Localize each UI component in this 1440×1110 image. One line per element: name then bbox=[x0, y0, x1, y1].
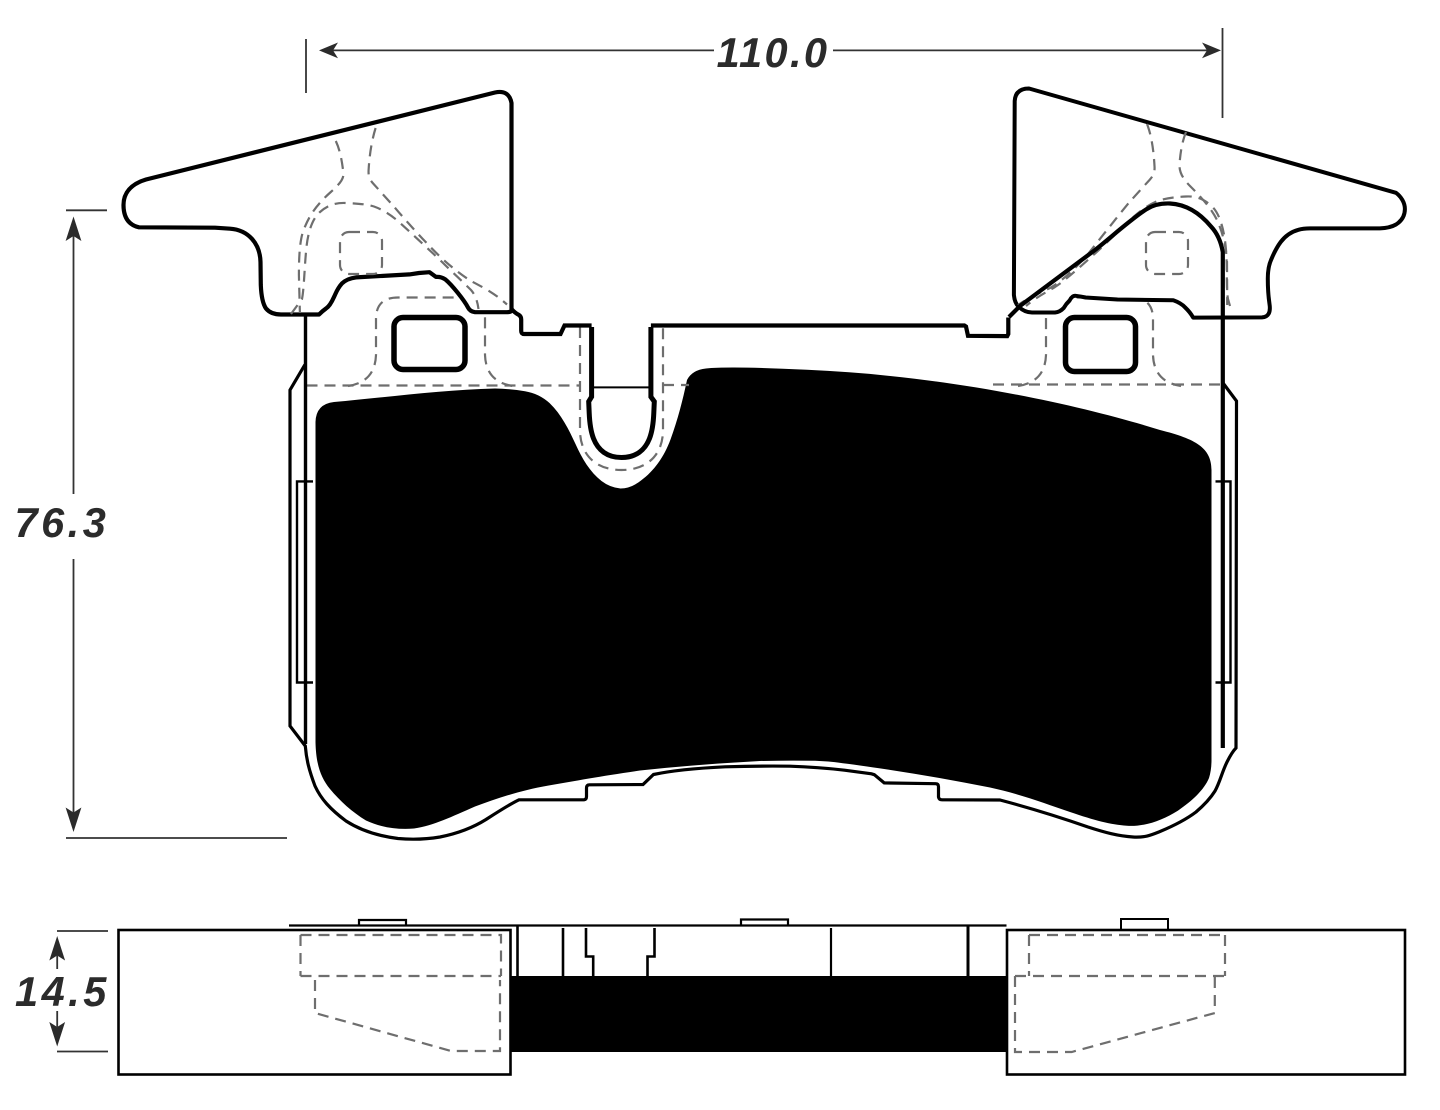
svg-text:76.3: 76.3 bbox=[15, 499, 110, 546]
svg-text:110.0: 110.0 bbox=[717, 29, 830, 76]
svg-text:14.5: 14.5 bbox=[15, 968, 110, 1015]
